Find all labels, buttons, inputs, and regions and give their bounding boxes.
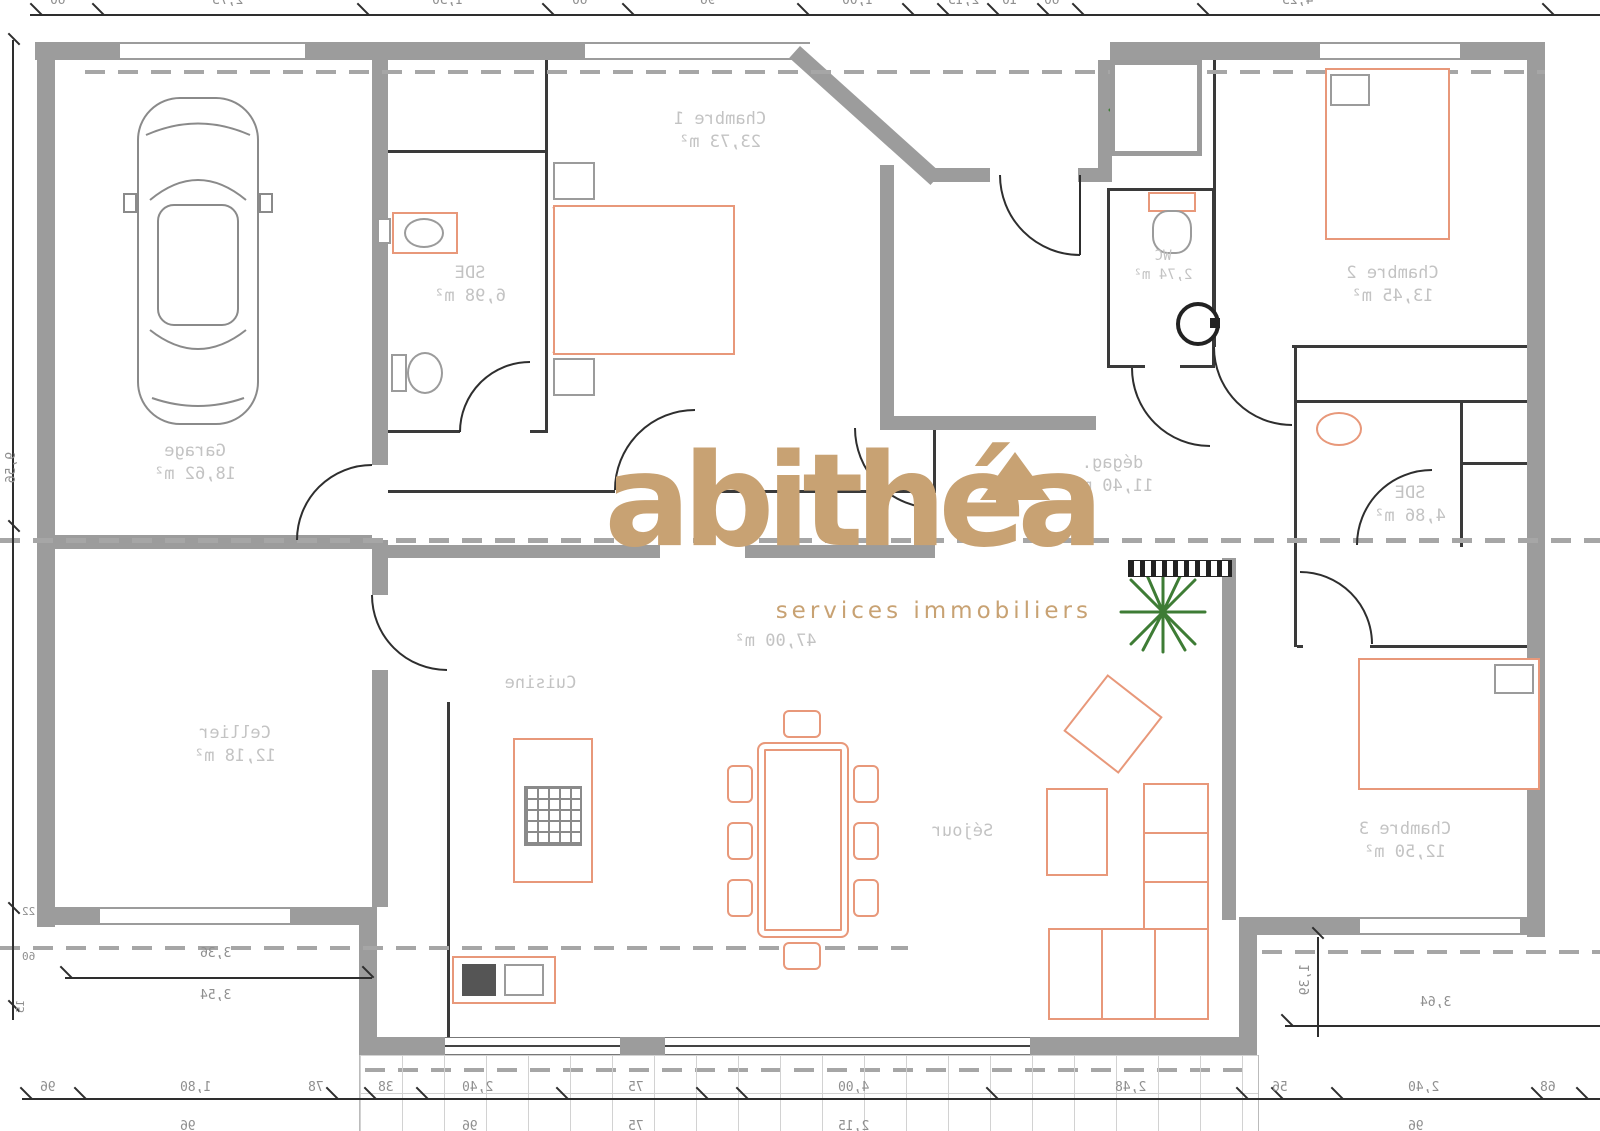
dimension-label: 75 <box>628 1119 644 1131</box>
dimension-label: 2,15 <box>948 0 979 8</box>
room-label-chambre1: Chambre 1 23,73 m² <box>630 108 810 154</box>
dimension-label: 96 <box>700 0 716 8</box>
dining-chair <box>727 822 753 860</box>
dimension-label: 3,54 <box>200 988 231 1003</box>
dimension-label: 3,36 <box>200 946 231 961</box>
room-name: WC <box>1128 247 1198 266</box>
toilet-icon <box>407 352 443 394</box>
room-name: Chambre 3 <box>1310 818 1500 841</box>
sofa-cushion-line <box>1145 832 1207 834</box>
dimension-label: 2,48 <box>1115 1080 1146 1095</box>
pillow <box>1494 664 1534 694</box>
sofa-cushion-line <box>1101 930 1103 1018</box>
dimension-label: 4,00 <box>838 1080 869 1095</box>
dining-chair <box>727 765 753 803</box>
dining-chair <box>853 822 879 860</box>
cooktop-grill-icon <box>524 786 582 846</box>
toilet-tank <box>391 354 407 392</box>
door-swing-arcs <box>297 175 1432 670</box>
dimension-label: 4,25 <box>1282 0 1313 8</box>
bed-icon <box>553 205 735 355</box>
dimension-label: 2,40 <box>1408 1080 1439 1095</box>
washbasin-bowl <box>404 218 444 248</box>
room-area: 4,86 m² <box>1345 505 1475 528</box>
room-name: SDE <box>400 262 540 285</box>
dimension-line <box>22 1098 1600 1100</box>
dimension-line <box>1317 937 1319 1037</box>
dimension-label: 1,39 <box>1298 964 1313 995</box>
dining-chair <box>727 879 753 917</box>
room-label-sde1: SDE 6,98 m² <box>400 262 540 308</box>
nightstand <box>553 358 595 396</box>
dimension-line <box>30 14 1600 16</box>
dimension-label: 68 <box>1540 1080 1556 1095</box>
room-area: 6,98 m² <box>400 285 540 308</box>
room-area: 23,73 m² <box>630 131 810 154</box>
room-name: Chambre 2 <box>1300 262 1485 285</box>
dimension-label: 96 <box>1408 1119 1424 1131</box>
dining-chair <box>853 879 879 917</box>
dimension-label: 22 <box>22 905 35 918</box>
dimension-label: 96 <box>462 1119 478 1131</box>
dimension-line <box>12 40 14 1020</box>
room-area: 47,00 m² <box>718 630 833 653</box>
dimension-label: 96 <box>180 1119 196 1131</box>
planter-box <box>1110 60 1202 156</box>
dimension-label: 1,80 <box>180 1080 211 1095</box>
room-area: 18,62 m² <box>120 463 270 486</box>
dimension-line <box>65 977 372 979</box>
dimension-label: 56 <box>1272 1080 1288 1095</box>
dining-chair <box>783 942 821 970</box>
sink-basin <box>504 964 544 996</box>
dimension-label: 60 <box>22 950 35 963</box>
logo-roof-icon <box>980 452 1050 500</box>
room-label-sejour: Séjour <box>905 820 1020 843</box>
room-label-chambre3: Chambre 3 12,50 m² <box>1310 818 1500 864</box>
nightstand <box>553 162 595 200</box>
room-area: 12,18 m² <box>155 745 315 768</box>
room-label-cuisine: Cuisine <box>478 672 603 695</box>
wc-toilet-tank <box>1148 192 1196 212</box>
room-label-cellier: Cellier 12,18 m² <box>155 722 315 768</box>
dimension-label: 38 <box>378 1080 394 1095</box>
room-name: Garage <box>120 440 270 463</box>
room-name: Cellier <box>155 722 315 745</box>
room-area: 2,74 m² <box>1128 266 1198 285</box>
tv-unit <box>1046 788 1108 876</box>
dimension-label: 60 <box>572 0 588 8</box>
dimension-label: 96 <box>40 1080 56 1095</box>
dimension-label: 60 <box>50 0 66 8</box>
dimension-label: 3,64 <box>1420 995 1451 1010</box>
sink-basin <box>462 964 496 996</box>
room-area: 13,45 m² <box>1300 285 1485 308</box>
dining-table <box>757 742 849 938</box>
dimension-label: 2,40 <box>462 1080 493 1095</box>
room-name: Séjour <box>905 820 1020 843</box>
room-name: SDE <box>1345 482 1475 505</box>
dining-chair <box>783 710 821 738</box>
room-name: Cuisine <box>478 672 603 695</box>
room-area: 12,50 m² <box>1310 841 1500 864</box>
dimension-label: 78 <box>308 1080 324 1095</box>
corner-sink-tap <box>1210 318 1220 328</box>
room-name: Chambre 1 <box>630 108 810 131</box>
radiator <box>1128 560 1232 577</box>
dimension-label: 10 <box>1002 0 1018 8</box>
dimension-label: 2,75 <box>212 0 243 8</box>
room-label-sde2: SDE 4,86 m² <box>1345 482 1475 528</box>
sofa-section <box>1143 783 1209 931</box>
dining-chair <box>853 765 879 803</box>
room-label-wc: WC 2,74 m² <box>1128 247 1198 285</box>
dimension-line <box>1285 1025 1600 1027</box>
plant-icon <box>1121 566 1205 652</box>
room-label-chambre2: Chambre 2 13,45 m² <box>1300 262 1485 308</box>
dimension-label: 1,50 <box>432 0 463 8</box>
sde2-sink-icon <box>1316 412 1362 446</box>
sofa-cushion-line <box>1154 930 1156 1018</box>
logo-tagline: services immobiliers <box>600 598 1092 624</box>
car-icon <box>124 98 272 424</box>
sofa-section <box>1048 928 1209 1020</box>
living-total-area: 47,00 m² <box>718 630 833 653</box>
sofa-cushion-line <box>1145 881 1207 883</box>
floor-plan: Garage 18,62 m² SDE 6,98 m² Chambre 1 23… <box>0 0 1600 1131</box>
dimension-label: 9,56 <box>4 452 19 483</box>
washbasin-shelf <box>377 218 391 244</box>
dimension-label: 15 <box>14 1000 27 1013</box>
room-label-garage: Garage 18,62 m² <box>120 440 270 486</box>
dimension-label: 75 <box>628 1080 644 1095</box>
dimension-label: 2,15 <box>838 1119 869 1131</box>
dimension-label: 60 <box>1044 0 1060 8</box>
pillow <box>1330 74 1370 106</box>
dimension-label: 1,00 <box>842 0 873 8</box>
